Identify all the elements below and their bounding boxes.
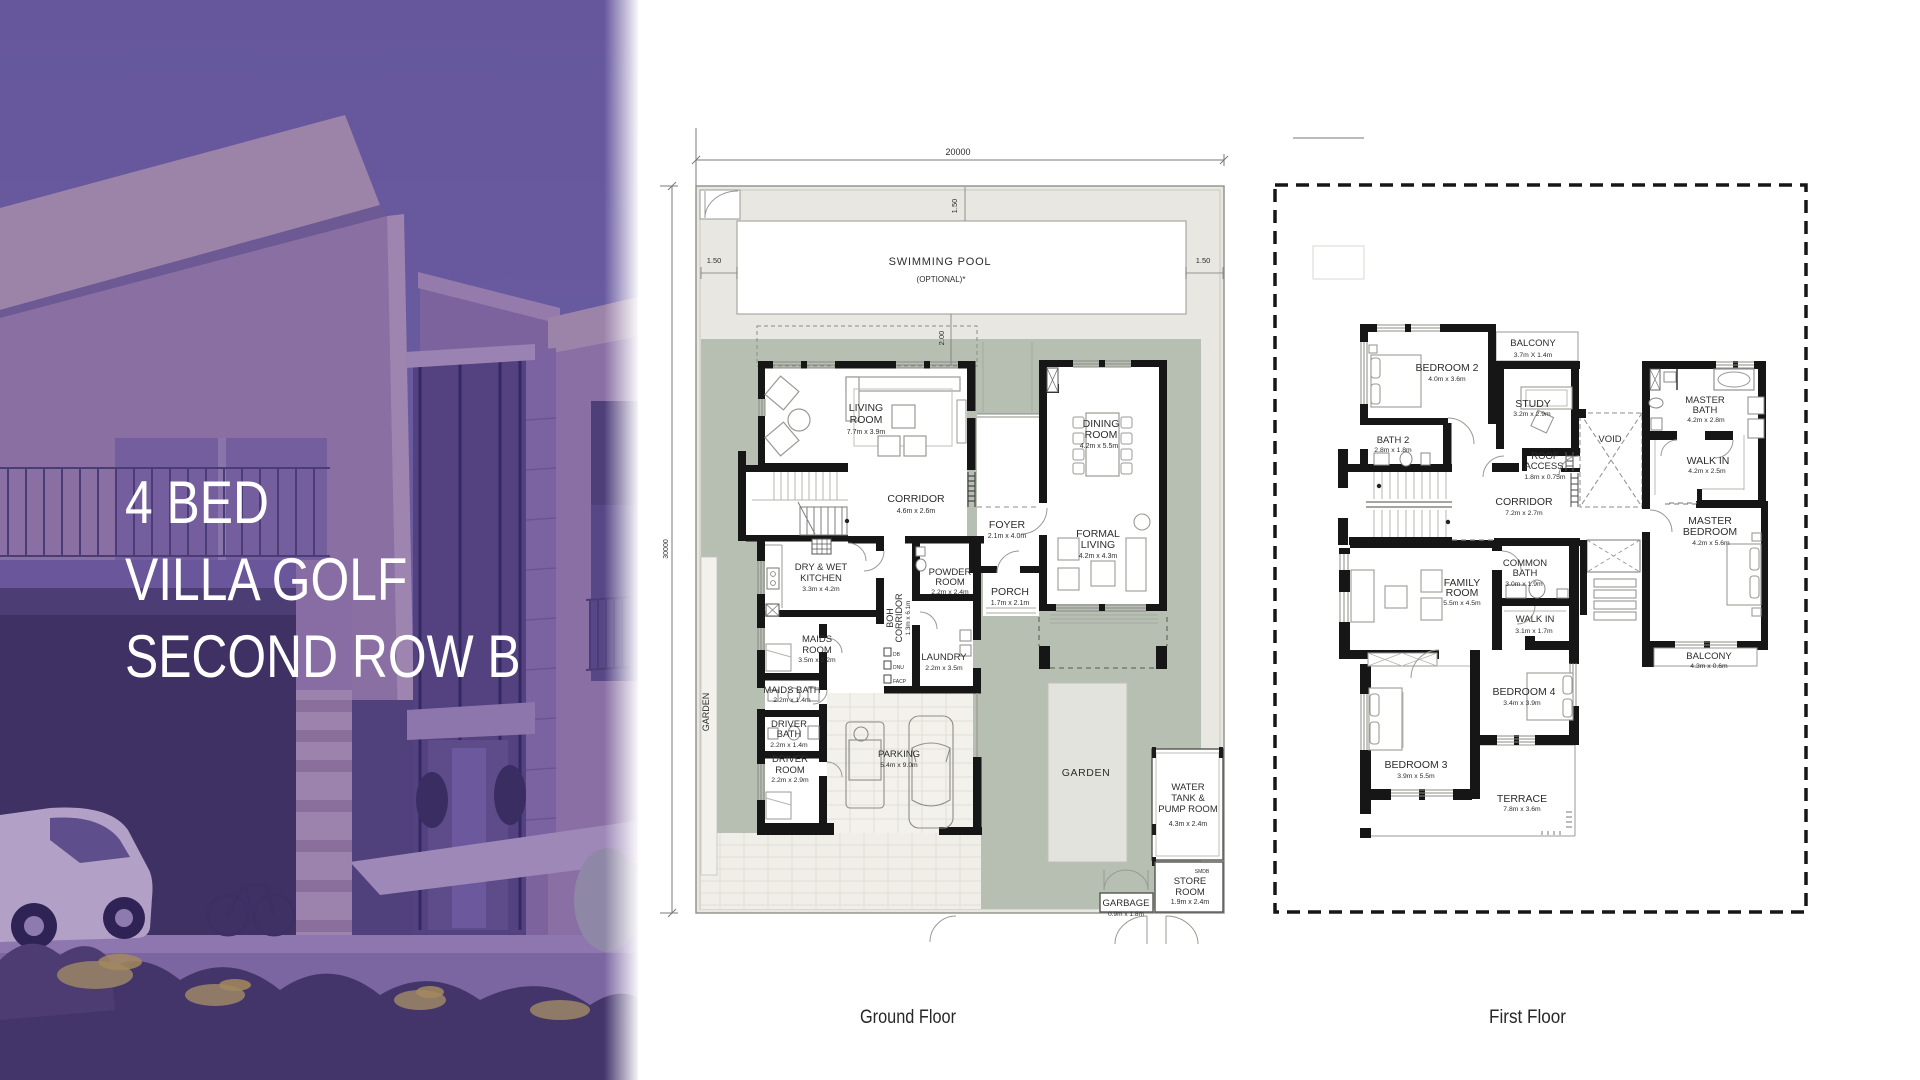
svg-text:BEDROOM 2: BEDROOM 2 bbox=[1415, 362, 1478, 374]
svg-text:4.2m x 4.3m: 4.2m x 4.3m bbox=[1079, 553, 1118, 560]
svg-text:2.2m x 3.5m: 2.2m x 3.5m bbox=[925, 665, 963, 672]
svg-text:3.1m x 1.7m: 3.1m x 1.7m bbox=[1515, 628, 1553, 635]
svg-text:ROOM: ROOM bbox=[1085, 429, 1118, 441]
svg-text:3.9m x 5.5m: 3.9m x 5.5m bbox=[1397, 773, 1435, 780]
svg-text:BEDROOM 3: BEDROOM 3 bbox=[1384, 759, 1447, 771]
svg-text:ROOM: ROOM bbox=[850, 414, 883, 426]
svg-text:SWIMMING POOL: SWIMMING POOL bbox=[889, 256, 992, 268]
svg-text:7.8m x 3.6m: 7.8m x 3.6m bbox=[1503, 806, 1541, 813]
svg-text:4.2m x 2.8m: 4.2m x 2.8m bbox=[1687, 417, 1725, 424]
svg-text:DB: DB bbox=[893, 652, 901, 658]
svg-text:1.7m x 2.1m: 1.7m x 2.1m bbox=[991, 600, 1030, 607]
svg-text:BALCONY: BALCONY bbox=[1510, 338, 1556, 349]
svg-text:WATER: WATER bbox=[1171, 782, 1204, 793]
svg-text:First Floor: First Floor bbox=[1489, 1007, 1567, 1028]
svg-text:PORCH: PORCH bbox=[991, 586, 1029, 598]
svg-text:4.2m x 2.5m: 4.2m x 2.5m bbox=[1688, 468, 1726, 475]
svg-text:30000: 30000 bbox=[663, 539, 670, 559]
svg-text:ROOM: ROOM bbox=[802, 645, 832, 656]
svg-text:1.3m x 6.1m: 1.3m x 6.1m bbox=[905, 601, 912, 636]
svg-text:2.2m x 1.4m: 2.2m x 1.4m bbox=[773, 697, 811, 704]
svg-text:GARDEN: GARDEN bbox=[701, 693, 711, 732]
svg-text:4.2m x 5.5m: 4.2m x 5.5m bbox=[1080, 443, 1119, 450]
svg-text:ROOM: ROOM bbox=[1446, 587, 1479, 599]
svg-text:7.2m x 2.7m: 7.2m x 2.7m bbox=[1505, 510, 1543, 517]
svg-text:FACP: FACP bbox=[893, 679, 907, 685]
svg-text:4.3m x 2.4m: 4.3m x 2.4m bbox=[1169, 821, 1208, 828]
svg-text:DRY & WET: DRY & WET bbox=[795, 562, 848, 573]
svg-text:BATH: BATH bbox=[1693, 405, 1718, 416]
svg-text:BATH 2: BATH 2 bbox=[1377, 435, 1410, 446]
svg-text:2.8m x 1.8m: 2.8m x 1.8m bbox=[1374, 447, 1412, 454]
svg-text:Ground Floor: Ground Floor bbox=[860, 1007, 957, 1028]
svg-text:VOID: VOID bbox=[1598, 434, 1621, 445]
svg-text:3.5m x 2.2m: 3.5m x 2.2m bbox=[798, 657, 836, 664]
svg-text:CORRIDOR: CORRIDOR bbox=[1495, 496, 1553, 508]
svg-text:PARKING: PARKING bbox=[878, 749, 920, 760]
svg-text:BATH: BATH bbox=[777, 729, 802, 740]
svg-text:GARDEN: GARDEN bbox=[1062, 767, 1111, 779]
svg-text:LIVING: LIVING bbox=[849, 402, 883, 414]
svg-text:1.50: 1.50 bbox=[950, 199, 959, 214]
svg-text:GARBAGE: GARBAGE bbox=[1103, 898, 1150, 909]
svg-text:20000: 20000 bbox=[945, 147, 970, 157]
svg-text:LIVING: LIVING bbox=[1081, 539, 1115, 551]
svg-text:TANK &: TANK & bbox=[1171, 793, 1205, 804]
svg-text:3.2m x 2.9m: 3.2m x 2.9m bbox=[1513, 411, 1551, 418]
svg-text:WALK IN: WALK IN bbox=[1516, 614, 1555, 625]
svg-text:(OPTIONAL)*: (OPTIONAL)* bbox=[917, 275, 966, 284]
svg-text:5.4m x 9.0m: 5.4m x 9.0m bbox=[880, 762, 918, 769]
svg-text:5.5m x 4.5m: 5.5m x 4.5m bbox=[1443, 600, 1481, 607]
svg-text:MAIDS BATH: MAIDS BATH bbox=[763, 685, 820, 696]
svg-text:MAIDS: MAIDS bbox=[802, 634, 832, 645]
svg-text:STORE: STORE bbox=[1174, 876, 1207, 887]
svg-text:4.3m x 0.6m: 4.3m x 0.6m bbox=[1690, 663, 1728, 670]
svg-text:BEDROOM: BEDROOM bbox=[1683, 526, 1737, 538]
svg-text:ROOM: ROOM bbox=[775, 765, 805, 776]
svg-text:ROOM: ROOM bbox=[1175, 887, 1205, 898]
svg-text:ROOM: ROOM bbox=[935, 577, 965, 588]
svg-text:7.7m x 3.9m: 7.7m x 3.9m bbox=[847, 429, 886, 436]
svg-text:1.50: 1.50 bbox=[707, 256, 722, 265]
svg-text:3.3m x 4.2m: 3.3m x 4.2m bbox=[802, 586, 840, 593]
svg-text:1.9m x 2.4m: 1.9m x 2.4m bbox=[1171, 899, 1210, 906]
svg-text:SMDB: SMDB bbox=[1195, 869, 1210, 875]
svg-text:1.8m x 0.75m: 1.8m x 0.75m bbox=[1524, 474, 1566, 481]
svg-text:CORRIDOR: CORRIDOR bbox=[894, 593, 904, 642]
svg-text:BATH: BATH bbox=[1513, 568, 1538, 579]
svg-text:2.00: 2.00 bbox=[937, 331, 946, 346]
svg-text:4.0m x 3.6m: 4.0m x 3.6m bbox=[1428, 376, 1466, 383]
svg-text:3.0m x 1.9m: 3.0m x 1.9m bbox=[1505, 581, 1543, 588]
svg-text:3.7m X 1.4m: 3.7m X 1.4m bbox=[1514, 352, 1553, 359]
svg-text:1.50: 1.50 bbox=[1196, 256, 1211, 265]
svg-text:2.1m x 4.0m: 2.1m x 4.0m bbox=[988, 533, 1027, 540]
svg-text:BEDROOM 4: BEDROOM 4 bbox=[1492, 686, 1555, 698]
svg-text:PUMP ROOM: PUMP ROOM bbox=[1158, 804, 1218, 815]
svg-text:0.9m x 1.8m: 0.9m x 1.8m bbox=[1108, 911, 1144, 918]
svg-text:3.4m x 3.9m: 3.4m x 3.9m bbox=[1503, 700, 1541, 707]
svg-text:BALCONY: BALCONY bbox=[1686, 651, 1732, 662]
svg-text:2.2m x 2.4m: 2.2m x 2.4m bbox=[931, 589, 969, 596]
svg-text:4.2m x 5.6m: 4.2m x 5.6m bbox=[1692, 540, 1730, 547]
svg-text:CORRIDOR: CORRIDOR bbox=[887, 493, 945, 505]
svg-text:WALK IN: WALK IN bbox=[1687, 455, 1730, 467]
svg-text:2.2m x 2.9m: 2.2m x 2.9m bbox=[771, 777, 809, 784]
svg-text:KITCHEN: KITCHEN bbox=[800, 573, 842, 584]
svg-text:LAUNDRY: LAUNDRY bbox=[921, 652, 967, 663]
svg-text:FOYER: FOYER bbox=[989, 519, 1026, 531]
svg-text:ACCESS: ACCESS bbox=[1524, 461, 1563, 472]
svg-text:DRIVER: DRIVER bbox=[772, 754, 808, 765]
svg-text:DNU: DNU bbox=[893, 665, 904, 671]
svg-text:STUDY: STUDY bbox=[1515, 398, 1551, 410]
svg-text:2.2m x 1.4m: 2.2m x 1.4m bbox=[770, 742, 808, 749]
svg-text:4.6m x 2.6m: 4.6m x 2.6m bbox=[897, 508, 936, 515]
svg-text:TERRACE: TERRACE bbox=[1497, 793, 1547, 805]
